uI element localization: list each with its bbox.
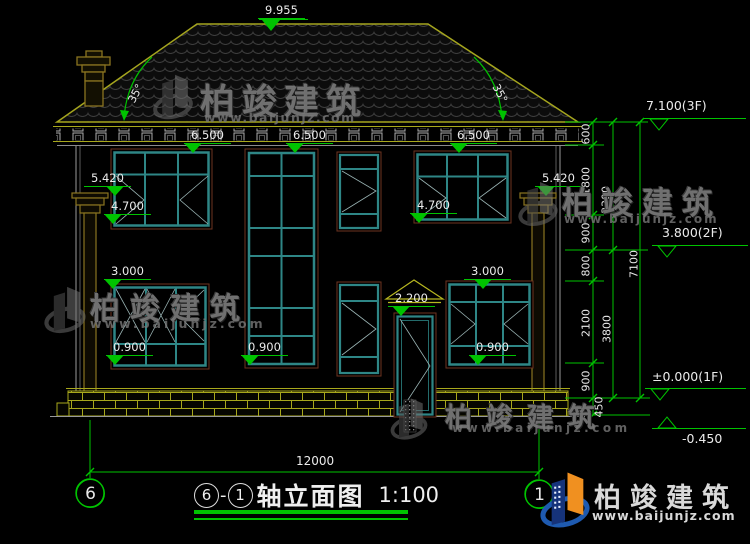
dim-900b: 900 xyxy=(580,371,593,392)
watermark-logo-icon xyxy=(518,176,558,232)
watermark-website: www.baijunjz.com xyxy=(90,316,266,331)
title-scale: 1:100 xyxy=(379,483,440,507)
watermark-website: www.baijunjz.com xyxy=(204,110,356,125)
win-head-2f-label: 6.500 xyxy=(450,129,497,144)
ridge-elevation-label: 9.955 xyxy=(258,4,305,19)
title-name: 轴立面图 xyxy=(257,477,365,513)
win-sill-1f-label: 0.900 xyxy=(106,341,153,356)
eave-trim-label: 5.420 xyxy=(84,172,131,187)
dim-600: 600 xyxy=(580,124,593,145)
win-head-1f-label: 3.000 xyxy=(464,265,511,280)
floor-1f-label: ±0.000(1F) xyxy=(652,369,723,384)
watermark-logo-icon xyxy=(44,281,86,339)
dim-7100: 7100 xyxy=(628,250,641,278)
win-sill-1f-label: 0.900 xyxy=(469,341,516,356)
win-head-2f-label: 6.500 xyxy=(286,129,333,144)
dim-800: 800 xyxy=(580,256,593,277)
overall-width-dim: 12000 xyxy=(296,455,334,468)
watermark-logo-icon xyxy=(152,70,194,124)
win-sill-2f-label: 4.700 xyxy=(410,199,457,214)
door-head-label: 2.200 xyxy=(388,292,435,307)
win-sill-1f-label: 0.900 xyxy=(241,341,288,356)
win-head-1f-label: 3.000 xyxy=(104,265,151,280)
window-2f-left xyxy=(111,149,212,229)
title-underline-thin xyxy=(194,518,408,520)
floor-2f-label: 3.800(2F) xyxy=(662,225,723,240)
win-sill-2f-label: 4.700 xyxy=(104,200,151,215)
window-stairwell xyxy=(245,149,318,368)
dim-2100: 2100 xyxy=(580,309,593,337)
window-1f-narrow xyxy=(337,282,381,376)
ground-level-label: -0.450 xyxy=(682,431,722,446)
title-separator: - xyxy=(220,485,227,506)
win-head-2f-label: 6.500 xyxy=(184,129,231,144)
watermark-logo-icon xyxy=(388,394,430,444)
axis-bubble-6: 6 xyxy=(76,479,105,508)
brand-logo-website: www.baijunjz.com xyxy=(592,508,736,523)
floor-3f-label: 7.100(3F) xyxy=(646,98,707,113)
drawing-title: 6 - 1 轴立面图 1:100 xyxy=(194,477,439,513)
title-axis-end: 1 xyxy=(228,483,253,508)
cad-elevation-drawing: 9.955 6.500 6.500 6.500 5.420 5.420 4.70… xyxy=(0,0,750,544)
brand-logo-icon xyxy=(540,462,590,538)
title-axis-start: 6 xyxy=(194,483,219,508)
window-2f-small xyxy=(337,152,381,231)
watermark-website: www.baijunjz.com xyxy=(564,212,719,226)
dim-3800: 3800 xyxy=(601,315,614,343)
title-underline-thick xyxy=(194,510,408,514)
watermark-website: www.baijunjz.com xyxy=(452,421,631,435)
